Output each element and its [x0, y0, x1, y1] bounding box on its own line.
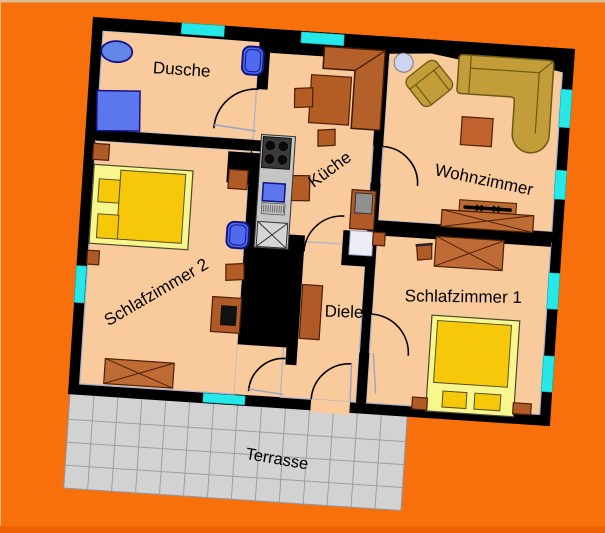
- svg-text:Schlafzimmer 1: Schlafzimmer 1: [405, 286, 522, 307]
- svg-text:Diele: Diele: [324, 302, 363, 322]
- svg-text:Dusche: Dusche: [152, 58, 211, 81]
